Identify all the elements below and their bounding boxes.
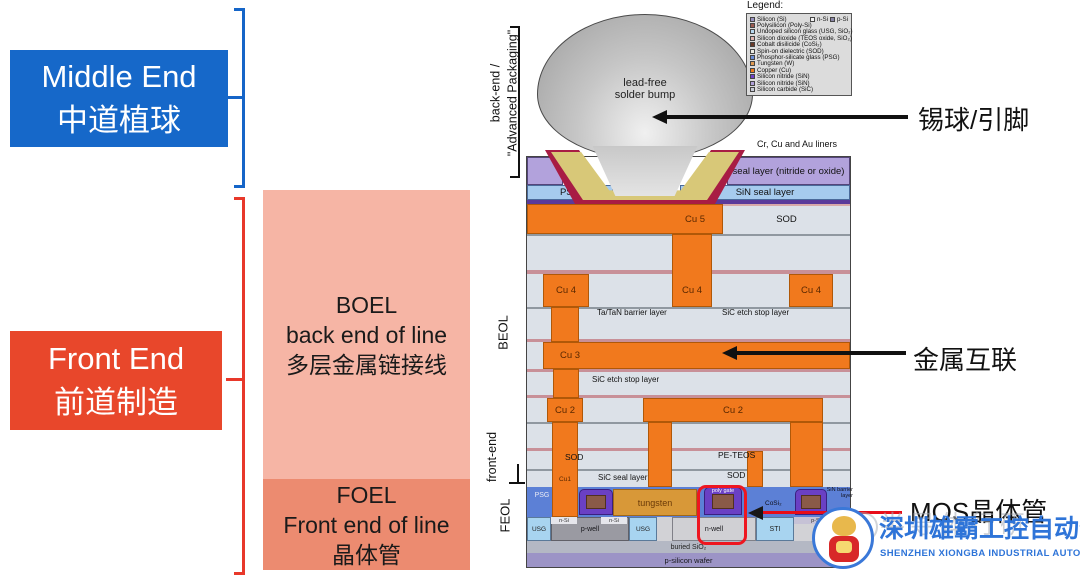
middle-end-line2: 中道植球: [10, 99, 228, 143]
legend-swatch: [750, 23, 755, 28]
bump-text: lead-free solder bump: [585, 78, 705, 101]
tatan-label: Ta/TaN barrier layer: [597, 309, 667, 317]
bear-mascot-belly: [836, 541, 852, 553]
usg1-label: USG: [532, 526, 546, 533]
middle-end-bracket-tick-mid: [228, 96, 243, 99]
usg2-block: USG: [629, 517, 657, 541]
legend-label: Silicon carbide (SiC): [757, 86, 813, 93]
legend-item: Silicon carbide (SiC): [750, 86, 848, 92]
middle-end-box: Middle End 中道植球: [10, 50, 228, 147]
seal-layer-label: seal layer (nitride or oxide): [733, 166, 845, 177]
foel-line1: FOEL: [263, 480, 470, 510]
boel-line3: 多层金属链接线: [263, 350, 470, 380]
legend-swatch: [810, 17, 815, 22]
boel-line1: BOEL: [263, 290, 470, 320]
legend-swatch: [750, 29, 755, 34]
cu2a-label: Cu 2: [547, 398, 583, 422]
legend-swatch: [750, 55, 755, 60]
legend-swatch: [750, 87, 755, 92]
usg2-label: USG: [636, 526, 650, 533]
solder-callout-arrowhead: [652, 110, 667, 124]
foel-box: FOEL Front end of line 晶体管: [263, 479, 470, 570]
front-end-bracket-tick-top: [234, 197, 243, 200]
sod1-label: SOD: [776, 214, 797, 225]
via-cu3-cu2: [553, 369, 579, 398]
frontend-feol-tick: [509, 482, 525, 484]
company-name-en: SHENZHEN XIONGBA INDUSTRIAL AUTOMATION: [880, 549, 1080, 559]
transistor-1-gate: [586, 495, 606, 509]
solder-callout-label: 锡球/引脚: [918, 100, 1029, 137]
via-cu4-cu3: [551, 307, 579, 342]
interconnect-callout-label: 金属互联: [913, 340, 1017, 377]
sti-block: STI: [756, 517, 794, 541]
interconnect-callout-arrowhead: [722, 346, 737, 360]
backend-axis-line: [518, 26, 520, 178]
nsi1-label: n-Si: [559, 518, 569, 524]
frontend-feol-divider: [517, 464, 519, 484]
bear-mascot-head: [832, 516, 856, 536]
bump-text-line2: solder bump: [615, 90, 676, 102]
tungsten-label: tungsten: [638, 498, 673, 508]
legend-row1-extras: n-Sip-Si: [810, 16, 848, 23]
backend-packaging-label: back-end / "Advanced Packaging": [488, 6, 522, 181]
nsi2-label: n-Si: [609, 518, 619, 524]
backend-axis-tick-top: [510, 26, 520, 28]
front-end-bracket-tick-bottom: [234, 572, 243, 575]
seal-layer-right: seal layer (nitride or oxide): [727, 157, 850, 185]
via-right-deep: [790, 422, 823, 487]
middle-end-bracket-tick-top: [234, 8, 243, 11]
legend-swatch: [750, 68, 755, 73]
middle-end-line1: Middle End: [10, 55, 228, 99]
interconnect-callout-line: [736, 351, 906, 355]
cr-cu-au-label: Cr, Cu and Au liners: [757, 140, 837, 149]
cu3-label: Cu 3: [545, 342, 595, 369]
psg2-label-wrap: PSG: [527, 488, 557, 502]
legend-title: Legend:: [747, 1, 783, 12]
cu2b-label: Cu 2: [643, 398, 823, 422]
cu4a-label: Cu 4: [543, 274, 589, 307]
foel-line2: Front end of line: [263, 510, 470, 540]
nsi-strip-1: n-Si: [551, 517, 577, 524]
front-end-box: Front End 前道制造: [10, 331, 222, 430]
sod3-label: SOD: [727, 471, 745, 480]
bump-text-line1: lead-free: [623, 78, 666, 90]
sti-label: STI: [770, 526, 781, 533]
tungsten-block: tungsten: [613, 489, 697, 516]
cu4b-label: Cu 4: [672, 274, 712, 307]
front-end-bracket: [242, 197, 245, 575]
psg2-label: PSG: [535, 492, 550, 499]
front-end-line2: 前道制造: [10, 381, 222, 425]
mos-callout-arrowhead: [748, 506, 763, 520]
sin-barrier-label: SiN barrier layer: [817, 488, 853, 500]
company-logo: [812, 507, 874, 569]
company-name-cn: 深圳雄霸工控自动化: [879, 516, 1080, 542]
front-end-bracket-tick-mid: [226, 378, 243, 381]
pwell-label: p-well: [581, 526, 599, 533]
legend-label: p-Si: [837, 16, 848, 23]
feol-label: FEOL: [498, 486, 513, 546]
cu1-label: Cu1: [552, 471, 578, 487]
nsi-strip-2: n-Si: [601, 517, 627, 524]
legend-swatch: [750, 36, 755, 41]
legend-items: Silicon (Si)n-Sip-SiPolysilicon (Poly-Si…: [750, 16, 848, 93]
sin-seal-label: SiN seal layer: [736, 187, 795, 198]
cu5-label: Cu 5: [673, 204, 717, 234]
beol-label: BEOL: [496, 303, 511, 363]
buried-oxide-label-wrap: buried SiO₂: [527, 541, 850, 553]
infographic-canvas: Middle End 中道植球 Front End 前道制造 BOEL back…: [0, 0, 1080, 585]
legend-swatch: [750, 42, 755, 47]
legend-label: n-Si: [817, 16, 828, 23]
cosi2-label: CoSi₂: [765, 501, 782, 508]
legend-swatch: [830, 17, 835, 22]
sod1-label-wrap: SOD: [723, 204, 850, 234]
legend-swatch: [750, 49, 755, 54]
legend-swatch: [750, 61, 755, 66]
boel-box: BOEL back end of line 多层金属链接线: [263, 190, 470, 479]
sod2-label: SOD: [565, 453, 583, 462]
sic-seal-label: SiC seal layer: [598, 474, 647, 482]
middle-end-bracket-tick-bottom: [234, 185, 243, 188]
via-left-deep: [552, 422, 578, 517]
peteos-label: PE-TEOS: [718, 451, 755, 460]
legend-swatch: [750, 17, 755, 22]
sic2-label: SiC etch stop layer: [592, 376, 659, 384]
mos-highlight-box: [697, 485, 747, 545]
via-mid-deep: [648, 422, 672, 487]
legend-swatch: [750, 74, 755, 79]
sic1-label: SiC etch stop layer: [722, 309, 789, 317]
boel-line2: back end of line: [263, 320, 470, 350]
foel-line3: 晶体管: [263, 540, 470, 570]
legend-box: Silicon (Si)n-Sip-SiPolysilicon (Poly-Si…: [746, 13, 852, 96]
buried-oxide-label: buried SiO₂: [671, 544, 707, 551]
usg1-block: USG: [527, 517, 551, 541]
front-end-line1: Front End: [10, 337, 222, 381]
cu4c-label: Cu 4: [789, 274, 833, 307]
legend-swatch: [750, 81, 755, 86]
wafer-label-wrap: p-silicon wafer: [527, 553, 850, 567]
backend-axis-tick-bottom: [510, 176, 520, 178]
solder-callout-line: [666, 115, 908, 119]
wafer-label: p-silicon wafer: [665, 556, 713, 565]
